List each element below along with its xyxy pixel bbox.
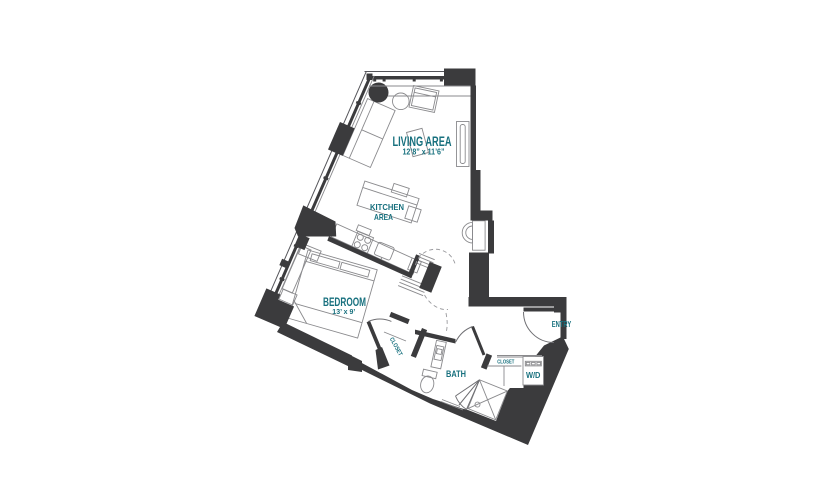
svg-text:KITCHEN: KITCHEN — [370, 202, 404, 212]
svg-text:ENTRY: ENTRY — [552, 319, 572, 329]
svg-text:13’ x 9’: 13’ x 9’ — [332, 309, 355, 316]
svg-text:AREA: AREA — [374, 212, 393, 222]
svg-text:BATH: BATH — [446, 369, 466, 380]
svg-text:12’8” x 11’6”: 12’8” x 11’6” — [403, 148, 445, 157]
svg-text:W/D: W/D — [526, 370, 541, 380]
svg-text:CLOSET: CLOSET — [497, 359, 515, 365]
svg-text:BEDROOM: BEDROOM — [323, 297, 366, 309]
